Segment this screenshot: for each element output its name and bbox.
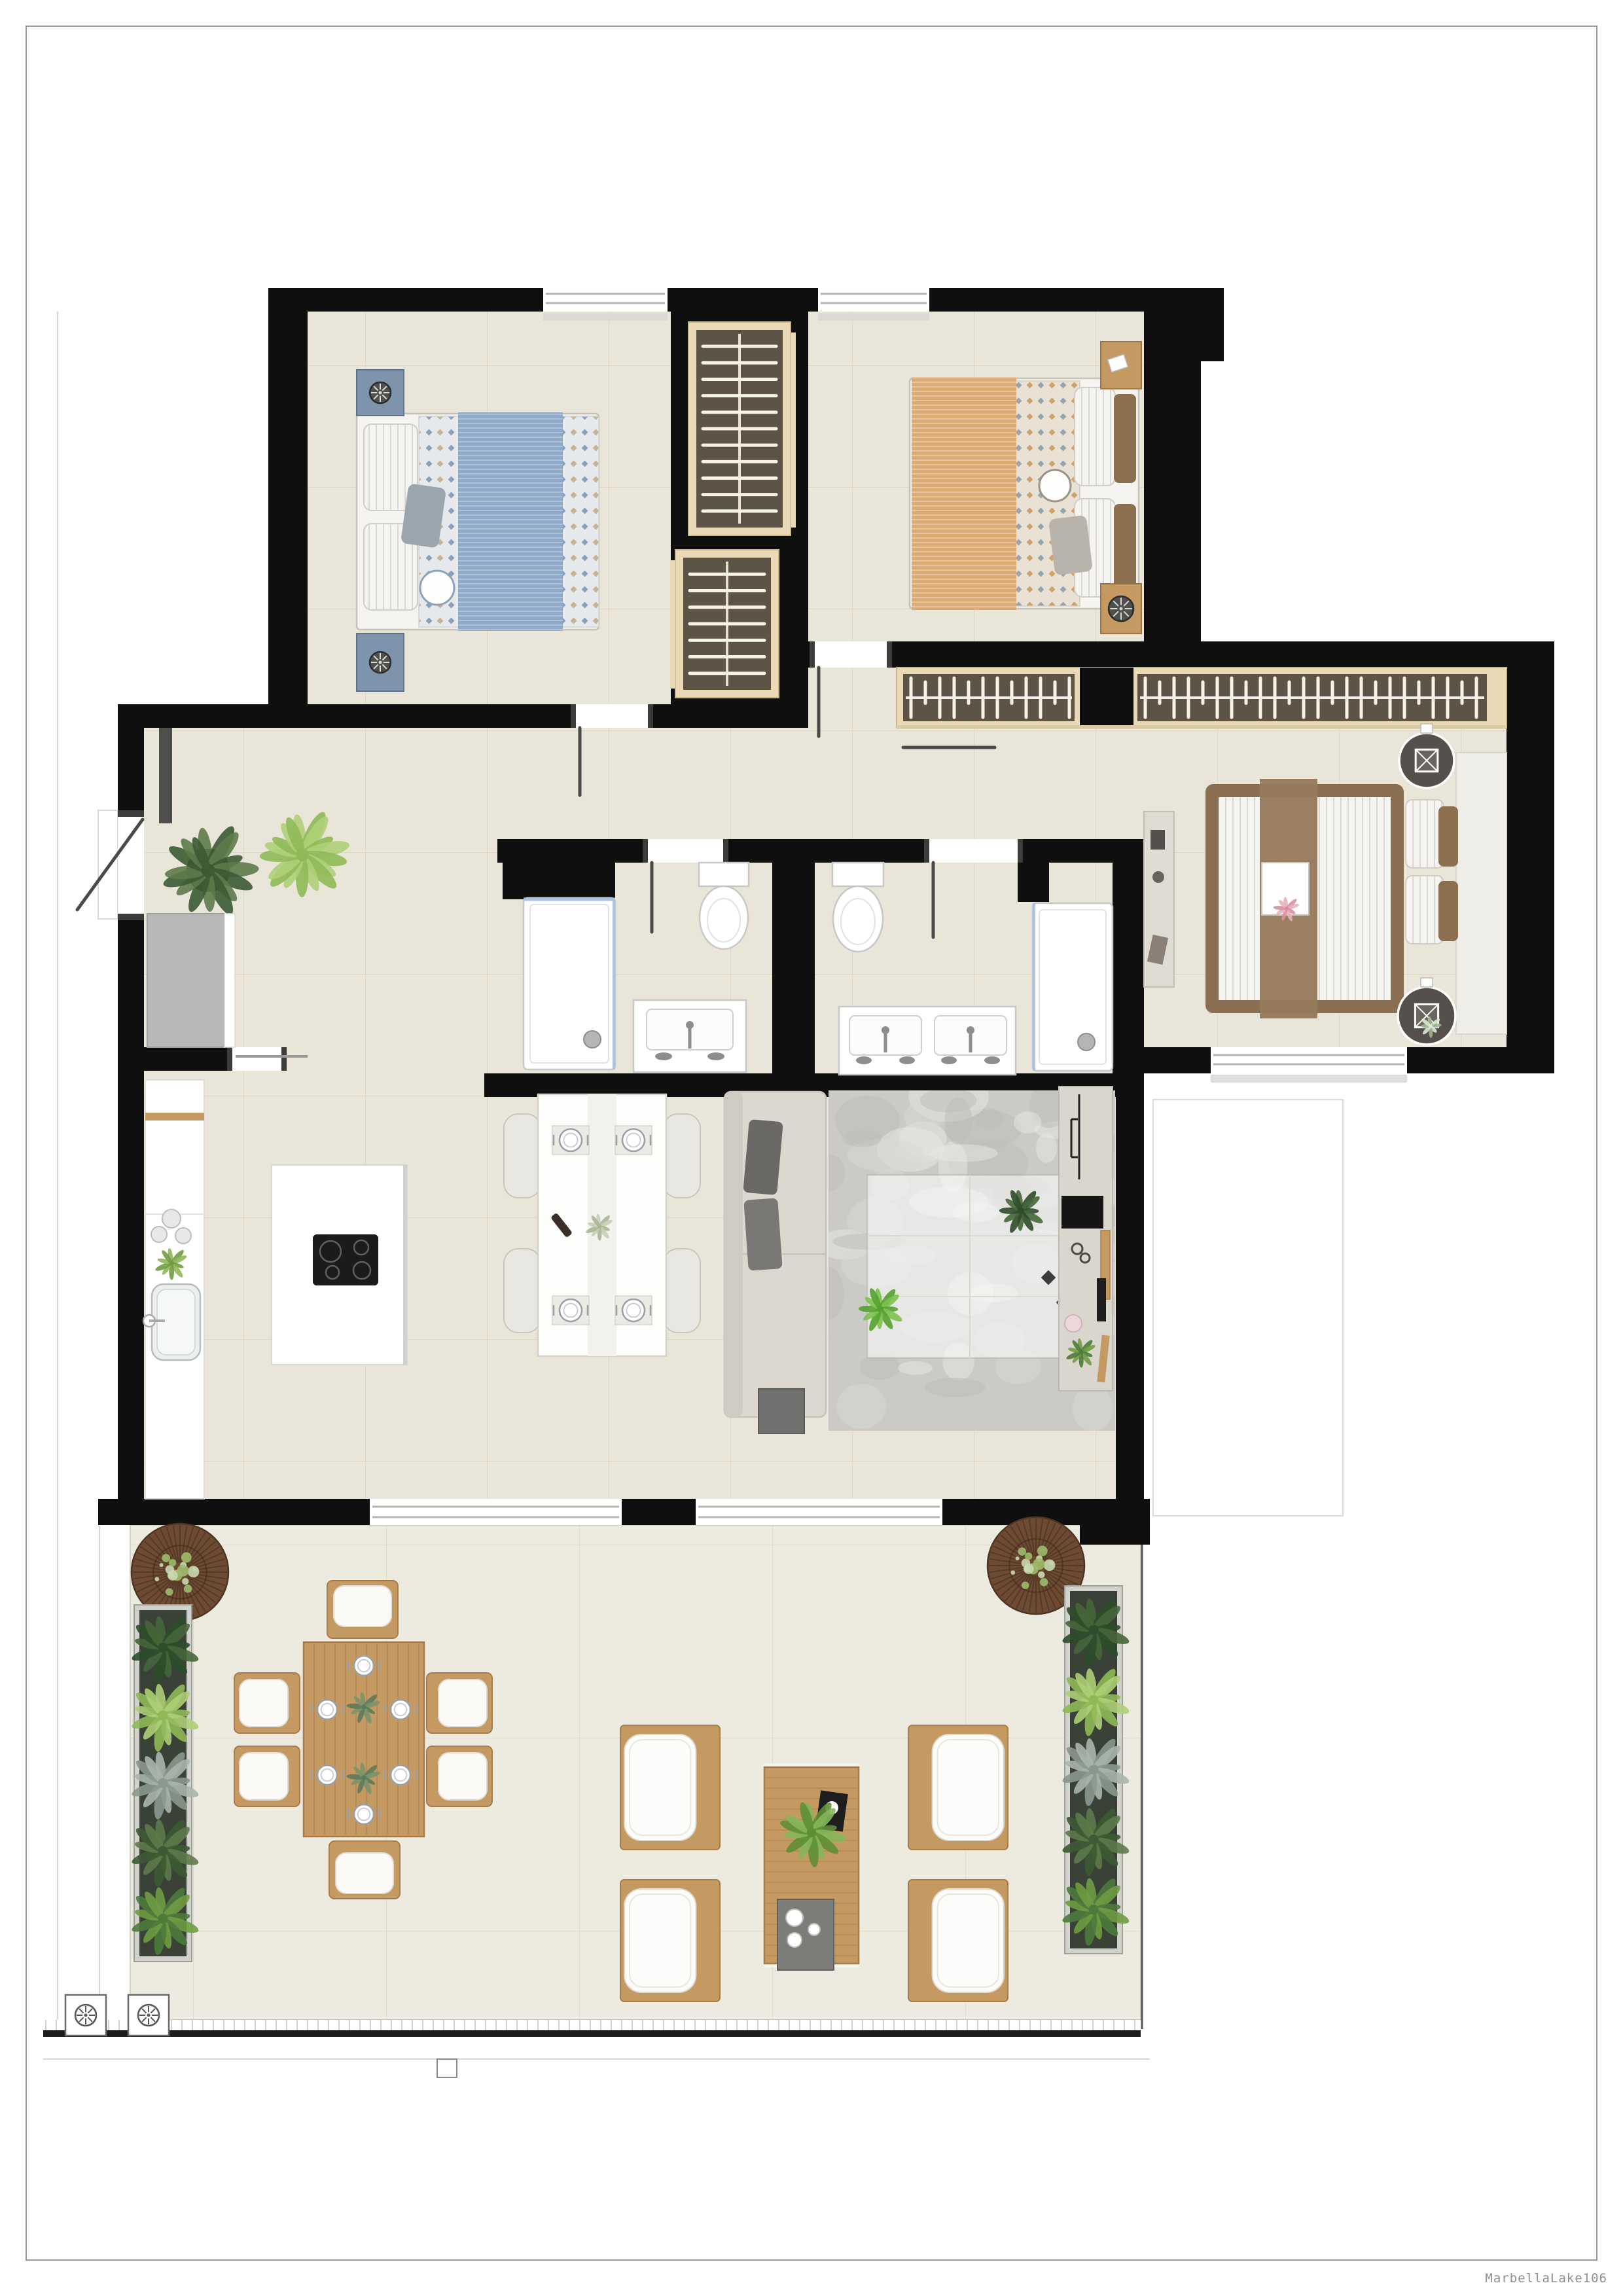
sofa [724, 1092, 826, 1433]
walk-in-closet-bottom [670, 550, 779, 698]
bed-2-tan-throw [912, 377, 1016, 610]
place-setting [615, 1296, 652, 1325]
planter-bed-left [130, 1605, 200, 1962]
sofa-pillow [743, 1198, 782, 1270]
terrace-chair [327, 1581, 398, 1638]
pergola-column [437, 2059, 457, 2077]
tv [1061, 1196, 1103, 1229]
bed-1-emblem-pillow [420, 571, 454, 605]
dining-chair [504, 1114, 541, 1198]
bedroom-1-window [543, 288, 668, 321]
place-setting [552, 1296, 589, 1325]
lamp-icon [1109, 596, 1133, 621]
terrace-chair [329, 1841, 400, 1899]
bed-2-emblem-pillow [1039, 470, 1071, 501]
closet-top-rails [703, 334, 776, 524]
terrace-window-living [696, 1499, 942, 1525]
bedroom-2-window [818, 288, 929, 321]
dresser-decor [1152, 871, 1164, 883]
lamp-icon [370, 652, 391, 673]
washbasin [633, 1000, 746, 1072]
cup [787, 1933, 802, 1947]
pink-dish [1065, 1315, 1082, 1332]
headboard-ledge [1456, 753, 1507, 1034]
cup [808, 1924, 820, 1935]
place-setting [552, 1126, 589, 1155]
lounge-chair [908, 1880, 1008, 2001]
terrace-chair [234, 1673, 300, 1733]
place-setting [615, 1126, 652, 1155]
bedroom-2 [910, 342, 1141, 634]
master-pillow [1406, 800, 1444, 868]
toilet [832, 863, 883, 952]
terrace-chair [427, 1673, 492, 1733]
living-room [724, 1070, 1149, 1433]
bed-2-cushion [1048, 515, 1093, 575]
bed-2-accent-pillow [1114, 504, 1136, 593]
walk-in-closet-top [688, 322, 796, 535]
sofa-pillow [743, 1119, 783, 1195]
counter-wood-strip [145, 1113, 204, 1121]
master-bedroom-window [1211, 1047, 1407, 1083]
dining-chair [664, 1249, 700, 1333]
terrace-chair [234, 1746, 300, 1806]
double-washbasin [839, 1007, 1016, 1075]
lounge-chair [620, 1725, 720, 1850]
side-table [758, 1389, 804, 1433]
dining-chair [504, 1249, 541, 1333]
floor-plan-drawing [0, 0, 1623, 2296]
closet-door-strip [670, 560, 675, 689]
bowl [151, 1227, 167, 1242]
serving-tray [777, 1899, 834, 1970]
drain-icon [75, 2005, 96, 2026]
bowl [175, 1228, 191, 1244]
shower-drain [584, 1031, 601, 1048]
planter-bed-right [1061, 1586, 1131, 1954]
drain-icon [138, 2005, 159, 2026]
lounge-chair [620, 1880, 720, 2001]
bed-2-pillow [1075, 387, 1115, 486]
floor-plan-page: MarbellaLake106 [0, 0, 1623, 2296]
master-pillow [1406, 876, 1444, 944]
watermark: MarbellaLake106 [1485, 2271, 1607, 2286]
neighbor-terrace-outline [1153, 1100, 1343, 1516]
toilet [699, 863, 749, 949]
terrace-chair [427, 1746, 492, 1806]
decor-tray [1097, 1278, 1106, 1321]
shower-tray [1033, 903, 1113, 1071]
master-accent-pillow [1438, 881, 1458, 941]
closet-door-strip [791, 332, 796, 528]
cup [786, 1909, 803, 1926]
shower-tray [524, 898, 615, 1069]
bowl [162, 1210, 181, 1228]
coffee-table [867, 1175, 1073, 1358]
master-wardrobe [897, 668, 1507, 728]
terrace-window-dining [370, 1499, 622, 1525]
dresser-decor [1150, 830, 1165, 850]
dining-chair [664, 1114, 700, 1198]
bed-2-accent-pillow [1114, 394, 1136, 483]
shower-drain [1078, 1033, 1095, 1050]
hall-cabinet [159, 728, 172, 823]
tall-cabinet [147, 914, 224, 1047]
induction-hob [313, 1234, 378, 1285]
master-accent-pillow [1438, 806, 1458, 867]
entry-door [77, 810, 144, 920]
bed-1-blue-throw [458, 412, 563, 631]
lounge-chair [908, 1725, 1008, 1850]
kitchen-island [272, 1165, 407, 1365]
lamp-icon [370, 382, 391, 403]
